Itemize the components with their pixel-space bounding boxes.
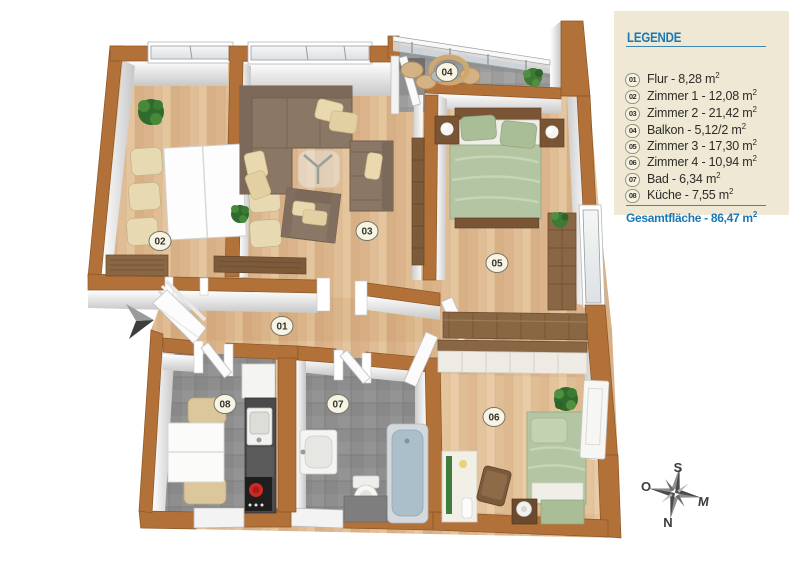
svg-text:08: 08 [219,400,231,411]
svg-text:04: 04 [441,68,453,79]
svg-text:N: N [663,515,672,530]
svg-text:03: 03 [361,227,373,238]
svg-text:05: 05 [491,259,503,270]
svg-text:O: O [641,479,651,494]
svg-text:06: 06 [488,413,500,424]
svg-text:01: 01 [276,322,288,333]
svg-text:M: M [697,494,710,509]
svg-text:S: S [674,460,683,475]
svg-text:07: 07 [332,400,344,411]
svg-text:02: 02 [154,237,166,248]
